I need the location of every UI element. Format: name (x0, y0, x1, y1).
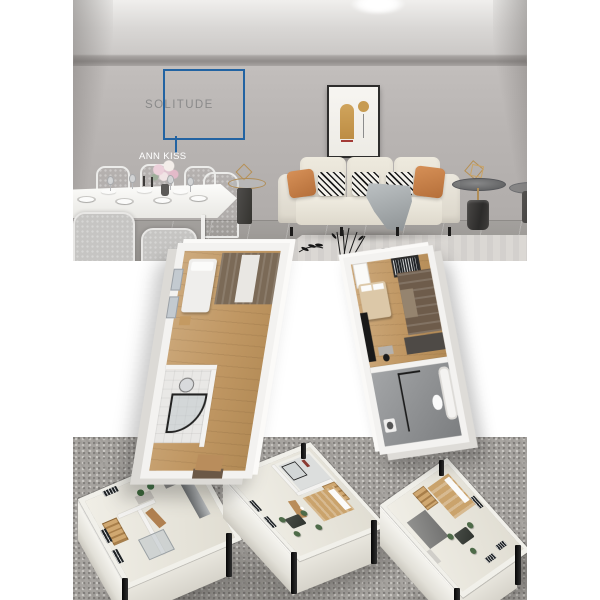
wine-glass (129, 174, 136, 189)
product-collage: SOLITUDE ANN KISS (0, 0, 600, 600)
bed-pillow (191, 262, 214, 271)
wardrobe (214, 253, 280, 304)
corner-post (226, 533, 232, 577)
plate (79, 197, 94, 202)
side-table-glass-top (452, 178, 506, 191)
art-circle-shape (358, 101, 369, 112)
corner-post (454, 588, 460, 600)
wine-glass (187, 177, 194, 192)
candlestick (143, 176, 145, 186)
wine-glass (107, 176, 114, 191)
corner-post (122, 578, 128, 600)
green-chair (314, 524, 324, 531)
green-chair (292, 530, 302, 537)
corner-post (515, 545, 521, 585)
sofa-floor-shadow (282, 231, 458, 241)
corner-post (439, 460, 444, 476)
art-red-accent (341, 140, 353, 142)
washing-machine (383, 418, 397, 433)
container-houses-photo (73, 437, 527, 600)
bed-pillow (373, 283, 384, 290)
nightstand (179, 316, 191, 325)
title-text: SOLITUDE (145, 99, 214, 111)
corner-table-base (522, 191, 527, 223)
sofa-leg (340, 227, 343, 236)
corner-post (301, 443, 306, 459)
zigzag-pillow (318, 172, 345, 196)
washer-door (386, 421, 394, 429)
art-pendulum-line (363, 114, 364, 138)
wood-door-leaf (195, 454, 224, 471)
sofa-leg (396, 227, 399, 236)
living-room-photo (73, 0, 527, 261)
plate (191, 196, 206, 201)
bed-pillow (361, 285, 372, 292)
green-chair (277, 516, 287, 523)
plate (117, 199, 132, 204)
bathroom-wall-horizontal (166, 365, 218, 370)
corner-post (371, 520, 377, 564)
plate (137, 188, 152, 193)
foreground-chair-left (73, 212, 135, 261)
window (102, 486, 119, 497)
flower-bouquet (149, 158, 181, 186)
side-table-marble-base (467, 200, 489, 230)
dining-table-model (454, 526, 475, 545)
window (495, 540, 507, 550)
candlestick (151, 177, 153, 187)
orange-pillow-right (412, 165, 445, 198)
artist-text: ANN KISS (139, 151, 187, 162)
potted-plant (146, 482, 156, 491)
bed-pillow (444, 477, 470, 504)
sofa (278, 157, 460, 237)
wire-sculpture-inner (470, 164, 484, 178)
floor-plan-right (343, 245, 470, 455)
accent-table-base (237, 188, 252, 224)
ceiling (73, 0, 527, 62)
window (112, 549, 125, 564)
red-towel (301, 459, 310, 467)
sofa-leg (290, 227, 293, 236)
wall-art-frame (327, 85, 380, 158)
wood-bed (427, 473, 475, 519)
window (485, 553, 497, 563)
side-table (449, 160, 509, 230)
plate (155, 198, 170, 203)
art-arch-shape (340, 104, 354, 139)
dining-table-leg (201, 215, 205, 241)
corner-post (291, 552, 297, 594)
green-chair (469, 547, 478, 555)
shower-glass (138, 529, 175, 560)
wardrobe-mirror-door (234, 255, 260, 303)
plate (173, 189, 188, 194)
wine-glass (167, 175, 174, 190)
orange-pillow-left (286, 168, 316, 198)
